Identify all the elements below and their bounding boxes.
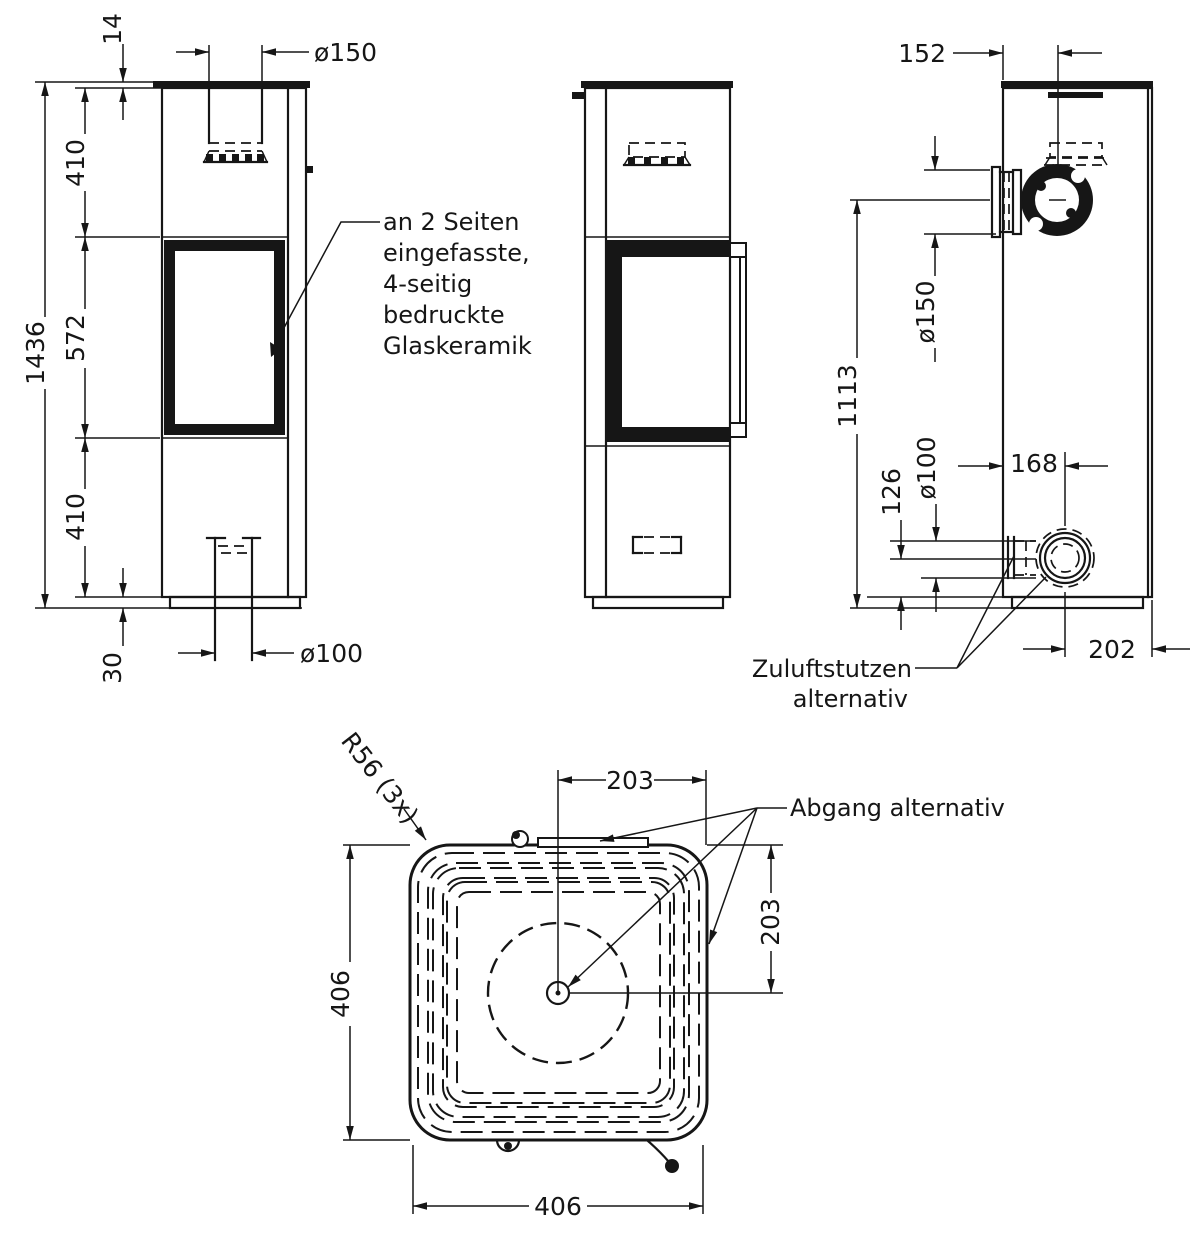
dim-back-rear-offset: 202 — [1088, 635, 1136, 664]
back-dimensions: 152 ø150 1113 126 ø100 168 — [833, 39, 1190, 664]
back-flue-ring — [1021, 164, 1093, 236]
dim-top-width: 406 — [534, 1192, 582, 1221]
dim-front-flue-diameter: ø150 — [314, 38, 377, 67]
back-plinth — [1012, 597, 1143, 608]
dim-front-upper: 410 — [61, 139, 90, 187]
dim-back-air-offset: 168 — [1010, 449, 1058, 478]
side-nub — [572, 92, 584, 99]
zuluft-note: Zuluftstutzen alternativ — [752, 556, 1046, 713]
side-plinth — [593, 597, 723, 608]
dim-top-depth: 406 — [326, 970, 355, 1018]
side-door-handle-top — [730, 243, 746, 257]
front-air-stub — [207, 538, 260, 660]
abgang-note-text: Abgang alternativ — [790, 794, 1005, 822]
technical-drawing: 14 ø150 410 572 410 1436 30 ø100 an 2 Se… — [0, 0, 1200, 1251]
front-window-glass — [175, 251, 274, 424]
dim-top-half-width: 203 — [606, 766, 654, 795]
drawing-sheet: 14 ø150 410 572 410 1436 30 ø100 an 2 Se… — [0, 0, 1200, 1251]
dim-back-flue-height: 1113 — [833, 364, 862, 428]
top-latch — [497, 1140, 519, 1151]
top-rear-outlet-slot — [538, 838, 648, 847]
glass-note-line-2: eingefasste, — [383, 239, 530, 267]
zuluft-note-line-2: alternativ — [793, 685, 908, 713]
dim-front-lower: 410 — [61, 493, 90, 541]
dim-back-air-diameter: ø100 — [912, 436, 941, 499]
front-side-nub — [306, 166, 313, 173]
top-view — [410, 770, 707, 1173]
abgang-note: Abgang alternativ — [568, 794, 1005, 987]
back-flue-collar — [1044, 143, 1108, 165]
dim-top-half-depth: 203 — [756, 898, 785, 946]
side-door-handle-bar — [740, 257, 746, 423]
glass-note-line-5: Glaskeramik — [383, 332, 532, 360]
dim-back-flue-offset: 152 — [898, 39, 946, 68]
dim-front-air-diameter: ø100 — [300, 639, 363, 668]
radius-note: R56 (3x) — [335, 727, 424, 829]
top-handle — [648, 1141, 679, 1173]
glass-note-line-4: bedruckte — [383, 301, 505, 329]
glass-note: an 2 Seiten eingefasste, 4-seitig bedruc… — [272, 208, 532, 360]
dim-front-window: 572 — [61, 314, 90, 362]
dim-front-total-height: 1436 — [21, 321, 50, 385]
dim-front-plinth-height: 30 — [98, 652, 127, 684]
side-flue-stub — [624, 143, 690, 165]
front-flue-stub — [204, 45, 267, 162]
back-side-stub — [992, 167, 1021, 237]
side-view — [572, 81, 746, 608]
front-plinth — [170, 597, 300, 608]
dim-back-air-height: 126 — [877, 468, 906, 516]
dim-back-flue-diameter: ø150 — [911, 280, 940, 343]
zuluft-note-line-1: Zuluftstutzen — [752, 655, 912, 683]
top-knob — [512, 831, 528, 847]
side-door — [585, 240, 746, 446]
side-air-stub — [633, 537, 681, 553]
dim-front-plate-thickness: 14 — [98, 13, 127, 45]
glass-note-line-1: an 2 Seiten — [383, 208, 520, 236]
side-door-handle-bottom — [730, 423, 746, 437]
back-view — [992, 45, 1153, 608]
back-slot-bar — [1048, 92, 1103, 98]
glass-note-line-3: 4-seitig — [383, 270, 472, 298]
